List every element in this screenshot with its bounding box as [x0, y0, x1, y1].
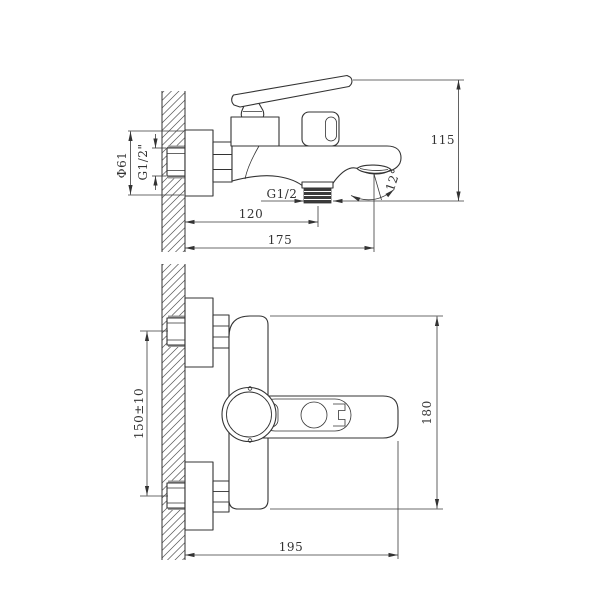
handle-lever-side — [232, 76, 352, 108]
dim-spout-reach-175: 175 — [185, 233, 374, 248]
dim-height-180-label: 180 — [420, 400, 434, 424]
inlet-nipple-side — [167, 146, 185, 179]
dim-flange-diameter-label: Ф61 — [115, 152, 129, 179]
side-view: Ф61 G1/2" G1/2 120 175 — [115, 76, 464, 253]
dim-height-115: 115 — [353, 80, 464, 201]
inlet-nipple-top — [167, 316, 185, 348]
hex-nut-top — [213, 315, 229, 348]
diverter-knob — [302, 112, 339, 146]
dim-outlet-offset-label: 120 — [239, 207, 263, 221]
dim-inlet-spacing-label: 150±10 — [132, 388, 146, 439]
dim-spout-reach-label: 175 — [268, 233, 292, 247]
dim-outlet-thread-label: G1/2 — [267, 187, 298, 201]
wall-hatch-front — [162, 264, 185, 560]
dim-inlet-thread-label: G1/2" — [136, 144, 150, 181]
escutcheon-side — [185, 130, 213, 196]
cartridge-housing — [231, 117, 279, 146]
aerator — [357, 165, 391, 173]
hex-nut-side — [213, 142, 232, 182]
spout-outlet-thread — [302, 182, 333, 203]
dim-width-195-label: 195 — [279, 540, 303, 554]
escutcheon-top — [185, 298, 213, 367]
dim-outlet-offset-120: 120 — [185, 206, 318, 227]
dim-spout-angle-12: 12° — [351, 167, 403, 252]
escutcheon-bottom — [185, 462, 213, 530]
hex-nut-bottom — [213, 481, 229, 512]
drawing-sheet: Ф61 G1/2" G1/2 120 175 — [0, 0, 600, 600]
dim-height-115-label: 115 — [431, 133, 455, 147]
technical-drawing: Ф61 G1/2" G1/2 120 175 — [0, 0, 600, 600]
front-view: 150±10 195 180 — [132, 264, 443, 560]
inlet-nipple-bottom — [167, 481, 185, 511]
handle-pivot — [222, 387, 276, 443]
